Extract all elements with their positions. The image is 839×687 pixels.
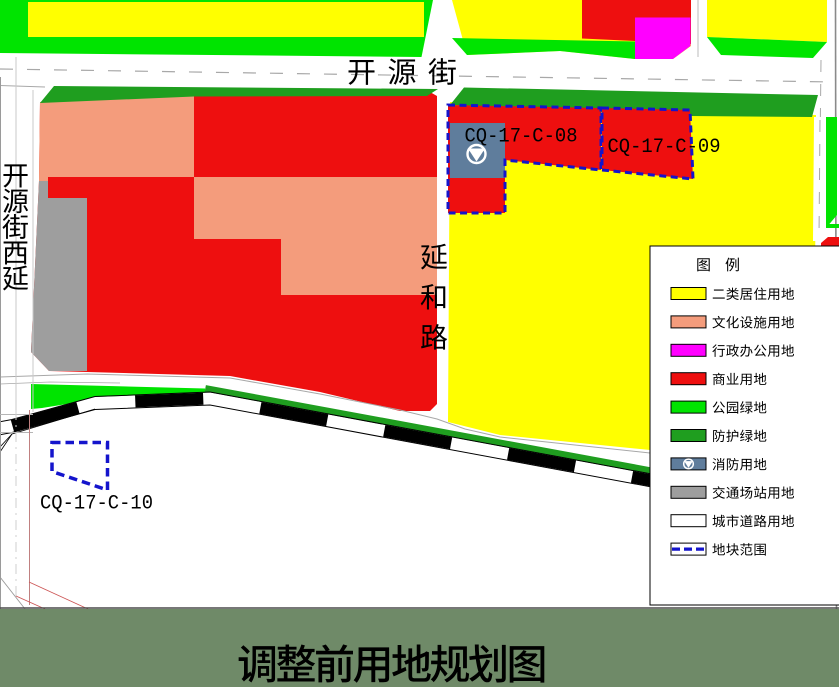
svg-text:CQ-17-C-09: CQ-17-C-09 <box>608 136 721 159</box>
svg-text:CQ-17-C-10: CQ-17-C-10 <box>40 493 153 516</box>
svg-text:CQ-17-C-08: CQ-17-C-08 <box>465 126 578 149</box>
